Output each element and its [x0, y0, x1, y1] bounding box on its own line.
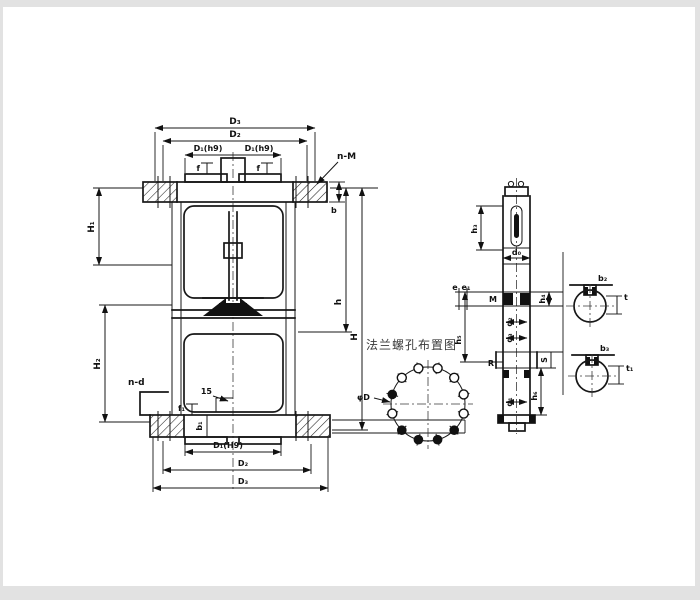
page-edge-top [0, 0, 700, 7]
bolt-diagram-title: 法兰螺孔布置图 [366, 338, 457, 352]
dim-label-d2-stem: d₂ [505, 317, 514, 327]
dim-label-d2-bottom: D₂ [238, 459, 249, 468]
dim-label-d1h9-right: D₁(h9) [245, 144, 274, 153]
dim-label-h3: h₃ [470, 224, 479, 234]
dim-label-d3-stem: d₃ [505, 333, 514, 343]
page-edge-left [0, 0, 3, 600]
dim-label-d0: d₀ [512, 248, 522, 257]
dim-label-f-right: f [257, 164, 261, 173]
dim-label-h2-left: H₂ [93, 358, 103, 370]
dim-label-b-flange: b [331, 206, 337, 215]
page-edge-right [695, 0, 700, 600]
dim-label-b3: b₃ [600, 344, 610, 353]
dim-label-S: S [540, 357, 549, 363]
bolt-circle-diagram: 法兰螺孔布置图 φD [357, 338, 473, 449]
dim-label-f1: f₁ [178, 404, 185, 413]
drawing-canvas: D₃ D₂ D₁(h9) D₁(h9) f f n-M b [0, 0, 700, 600]
dim-label-d1h9-left: D₁(h9) [194, 144, 223, 153]
valve-engineering-drawing: D₃ D₂ D₁(h9) D₁(h9) f f n-M b [0, 0, 700, 600]
dim-label-e: e [452, 283, 458, 292]
dim-label-t: t [624, 293, 628, 302]
bolt-callout-bottom: n-d [128, 378, 145, 388]
page-edge-bottom [0, 586, 700, 600]
dim-label-d1H9-bottom: D₁(H9) [213, 441, 243, 450]
detail-view-bottom: b₃ t₁ [568, 344, 634, 398]
detail-view-top: b₂ t [566, 274, 628, 328]
dim-label-h1-left: H₁ [87, 221, 97, 233]
dim-label-e1: e₁ [462, 283, 471, 292]
dim-label-h5: h₅ [454, 335, 463, 345]
dim-label-f-left: f [197, 164, 201, 173]
bolt-diagram-diameter-label: φD [357, 393, 370, 402]
bolt-holes-filled [388, 390, 460, 445]
dim-label-b2: b₂ [598, 274, 608, 283]
upper-chamber [184, 206, 283, 298]
bolt-callout-top: n-M [337, 152, 356, 162]
dim-label-d2-top: D₂ [229, 130, 240, 140]
bottom-flange [140, 392, 330, 444]
dim-label-h-inner: h [334, 299, 344, 305]
dim-label-d3-bottom: D₃ [238, 477, 249, 486]
dim-label-step15: 15 [201, 387, 213, 396]
dim-label-h4: h₄ [538, 294, 547, 304]
dim-label-thread-M: M [489, 295, 497, 304]
dim-label-d1-stem: d₁ [505, 397, 514, 407]
dim-label-b1: b₁ [195, 421, 204, 431]
dim-label-t1: t₁ [626, 364, 634, 373]
lower-chamber [184, 334, 283, 412]
dim-label-h-total: H [350, 333, 360, 341]
dim-label-d3-top: D₃ [229, 117, 240, 127]
dim-label-R: R [488, 359, 494, 368]
top-flange [143, 158, 327, 208]
dim-label-h6: h₆ [530, 391, 539, 401]
stem-section-view: h₃ d₀ M e e₁ h₄ d₂ d₃ h₅ R S [452, 178, 563, 434]
